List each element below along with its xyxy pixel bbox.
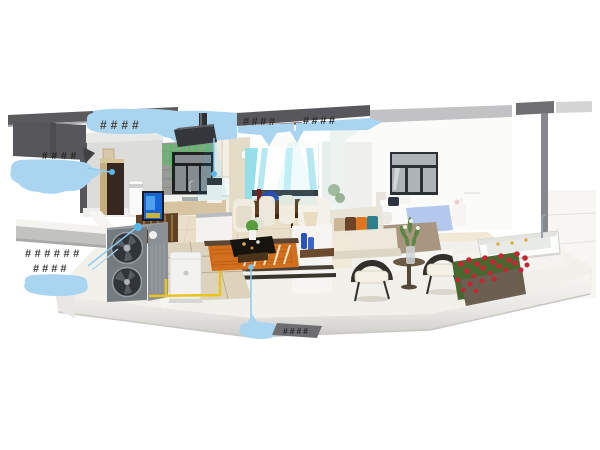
svg-text:######: ###### — [25, 248, 83, 260]
svg-text:####: #### — [283, 326, 310, 336]
svg-text:####: #### — [33, 263, 69, 275]
svg-text:####: #### — [100, 118, 143, 132]
svg-text:####: #### — [303, 115, 337, 127]
svg-text:####: #### — [243, 116, 277, 128]
